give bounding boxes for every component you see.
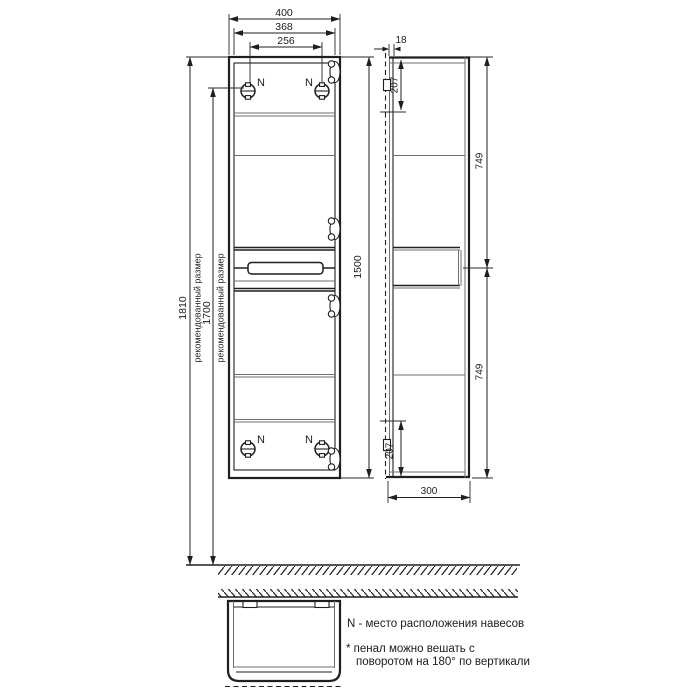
plan-view	[218, 589, 518, 687]
hanger-label: N	[257, 77, 265, 89]
dim-value: 1810	[177, 296, 189, 320]
dim-value: 207	[385, 442, 396, 459]
dim-value: 207	[390, 76, 401, 93]
dim-lower-section: 749	[472, 268, 493, 478]
floor-section	[186, 565, 520, 575]
extension-lines	[389, 44, 394, 56]
notes: N - место расположения навесов * пенал м…	[346, 618, 530, 668]
dim-value: 749	[475, 363, 486, 380]
dim-value: 1700	[201, 301, 213, 325]
note-line-1: * пенал можно вешать с	[346, 643, 475, 655]
side-section-edges	[393, 248, 460, 286]
dim-depth: 300	[388, 481, 470, 503]
hanger-mount-top-left	[241, 83, 255, 99]
dimension-arrows	[383, 47, 401, 52]
hinge-icon	[328, 61, 340, 83]
cabinet-drawing: N N N N 400 368 256	[0, 0, 700, 700]
door-handle	[248, 263, 323, 275]
side-carcass-outline	[386, 57, 470, 478]
plan-bracket-right	[315, 602, 329, 608]
dim-value: 400	[275, 7, 293, 19]
dim-value: 749	[475, 152, 486, 169]
hanger-mount-bottom-right	[315, 441, 329, 457]
dim-value: 368	[275, 21, 293, 33]
hanger-label: N	[257, 434, 265, 446]
dim-cabinet-height: 1500	[341, 57, 374, 478]
hinge-icon	[328, 448, 340, 470]
dim-label: рекомендованный размер	[215, 253, 225, 362]
side-shelf-lines	[393, 156, 465, 376]
dim-back-gap: 18	[374, 35, 407, 56]
note-line-2: поворотом на 180° по вертикали	[356, 656, 530, 668]
front-view: N N N N	[229, 57, 340, 478]
plan-outline	[228, 601, 340, 681]
hanger-label: N	[305, 434, 313, 446]
dim-value: 18	[395, 35, 407, 46]
side-recess-lines	[393, 250, 461, 288]
hanger-mount-bottom-left	[241, 441, 255, 457]
dim-upper-section: 749	[463, 57, 493, 268]
wall-hatching	[218, 589, 518, 597]
side-view	[384, 53, 471, 479]
hinge-icon	[328, 218, 340, 240]
dim-value: 256	[277, 35, 295, 47]
floor-hatching	[218, 566, 517, 575]
hanger-label: N	[305, 77, 313, 89]
dim-value: 300	[421, 486, 438, 497]
hanger-mount-top-right	[315, 83, 329, 99]
hinge-icon	[328, 295, 340, 317]
legend-text: N - место расположения навесов	[347, 618, 524, 630]
plan-bracket-left	[243, 602, 257, 608]
technical-drawing-page: N N N N 400 368 256	[0, 0, 700, 700]
dim-value: 1500	[352, 255, 364, 279]
side-inner-edges	[389, 57, 465, 478]
